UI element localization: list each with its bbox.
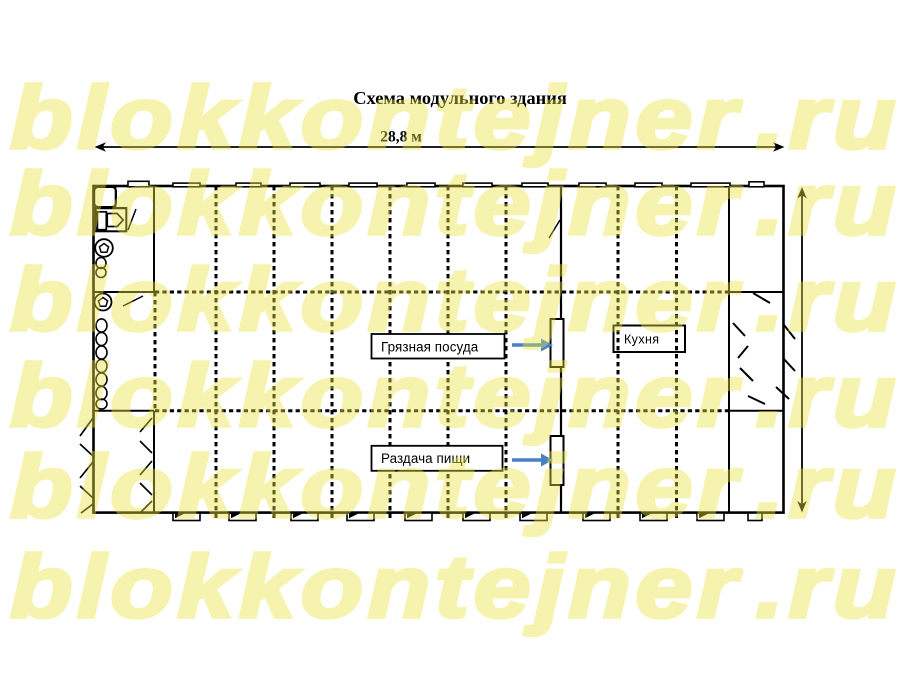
svg-text:Кухня: Кухня bbox=[624, 333, 659, 347]
svg-text:Грязная посуда: Грязная посуда bbox=[381, 340, 479, 355]
svg-text:28,8 м: 28,8 м bbox=[380, 129, 422, 146]
svg-text:Раздача пищи: Раздача пищи bbox=[381, 451, 470, 466]
svg-text:Схема модульного здания: Схема модульного здания bbox=[353, 88, 567, 108]
